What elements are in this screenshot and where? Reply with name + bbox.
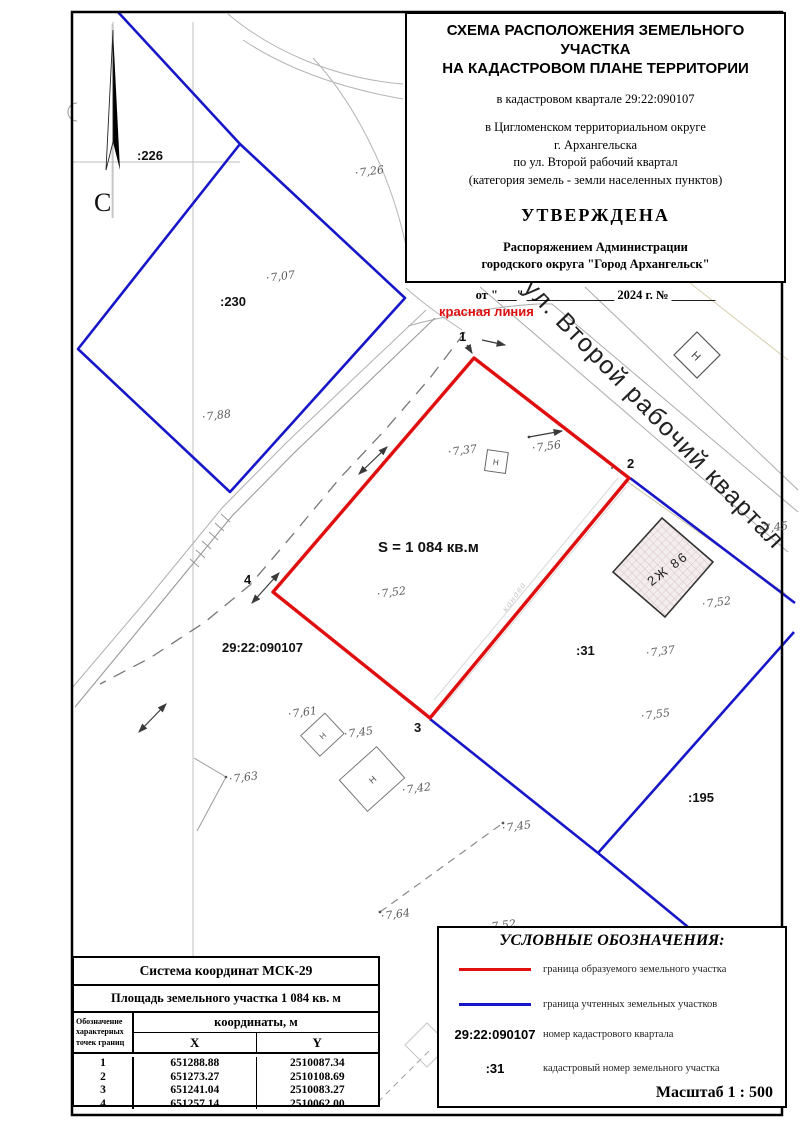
legend-blue-line-sample <box>459 1003 531 1006</box>
contour-lines <box>68 14 462 330</box>
scheme-title-line1: СХЕМА РАСПОЛОЖЕНИЯ ЗЕМЕЛЬНОГО УЧАСТКА <box>413 22 778 60</box>
address-line2: г. Архангельска <box>413 137 778 155</box>
points-header-line2: характерных <box>76 1027 132 1037</box>
table-row-num: 4 <box>74 1098 132 1112</box>
x-column-header: X <box>134 1033 257 1052</box>
parcel-area-label: S = 1 084 кв.м <box>378 539 479 556</box>
parcel-area-header: Площадь земельного участка 1 084 кв. м <box>74 986 378 1013</box>
y-coordinate-column: 2510087.34 2510108.69 2510083.27 2510062… <box>257 1057 379 1109</box>
tick-at-point1 <box>467 345 472 353</box>
parcel-230-boundary <box>78 144 405 492</box>
approval-date-line: от "___" ______________ 2024 г. № ______… <box>413 288 778 303</box>
x-coordinate-column: 651288.88 651273.27 651241.04 651257.14 <box>134 1057 257 1109</box>
parcel-label-230: :230 <box>220 294 246 309</box>
scheme-title-line2: НА КАДАСТРОВОМ ПЛАНЕ ТЕРРИТОРИИ <box>413 60 778 79</box>
point-label-1: 1 <box>459 329 466 344</box>
legend-item-label: граница образуемого земельного участка <box>543 964 726 975</box>
approved-heading: УТВЕРЖДЕНА <box>413 205 778 226</box>
parcel-31-195-boundary <box>598 632 794 853</box>
parcel-label-226: :226 <box>137 148 163 163</box>
road-centerline-dashed <box>100 332 465 684</box>
points-header-line1: Обозначение <box>76 1017 132 1027</box>
table-cell-y: 2510083.27 <box>257 1084 379 1098</box>
table-cell-x: 651257.14 <box>134 1098 256 1112</box>
arrow-near-756 <box>529 431 562 437</box>
north-letter: С <box>94 188 111 218</box>
table-cell-y: 2510108.69 <box>257 1071 379 1085</box>
arrow-near-point1 <box>482 340 505 345</box>
red-line-label: красная линия <box>439 304 534 319</box>
cadastral-scheme-page: Н Н Н Н 2Ж 86 <box>0 0 800 1131</box>
legend-title: УСЛОВНЫЕ ОБОЗНАЧЕНИЯ: <box>447 932 777 950</box>
point-number-column: 1 2 3 4 <box>74 1057 134 1109</box>
approved-by-line2: городского округа "Город Архангельск" <box>413 256 778 273</box>
table-cell-x: 651288.88 <box>134 1057 256 1071</box>
fence-outline <box>194 758 227 831</box>
coord-system-header: Система координат МСК-29 <box>74 958 378 986</box>
approved-by-line1: Распоряжением Администрации <box>413 239 778 256</box>
legend-parcel-number: :31 <box>486 1061 505 1076</box>
points-header-line3: точек границ <box>76 1038 132 1048</box>
table-cell-x: 651241.04 <box>134 1084 256 1098</box>
legend-red-line-sample <box>459 968 531 971</box>
table-row-num: 2 <box>74 1071 132 1085</box>
parcel-label-195: :195 <box>688 790 714 805</box>
double-arrow-road <box>359 447 387 474</box>
cadastral-quarter-label: 29:22:090107 <box>222 640 303 655</box>
table-cell-y: 2510087.34 <box>257 1057 379 1071</box>
coordinates-table: Система координат МСК-29 Площадь земельн… <box>72 956 380 1107</box>
parcel-label-31: :31 <box>576 643 595 658</box>
legend-item-label: кадастровый номер земельного участка <box>543 1063 720 1074</box>
ditch-lines <box>434 478 626 708</box>
table-cell-x: 651273.27 <box>134 1071 256 1085</box>
coordinates-header: координаты, м <box>134 1013 378 1033</box>
parcel-226-boundary <box>118 12 240 144</box>
table-cell-y: 2510062.00 <box>257 1098 379 1112</box>
table-row-num: 1 <box>74 1057 132 1071</box>
address-line4: (категория земель - земли населенных пун… <box>413 172 778 190</box>
address-line3: по ул. Второй рабочий квартал <box>413 154 778 172</box>
double-arrow-southwest <box>139 704 166 732</box>
parcel-195-west-boundary <box>598 853 688 927</box>
y-column-header: Y <box>257 1033 379 1052</box>
point-label-3: 3 <box>414 720 421 735</box>
legend-item-label: номер кадастрового квартала <box>543 1029 673 1040</box>
title-block: СХЕМА РАСПОЛОЖЕНИЯ ЗЕМЕЛЬНОГО УЧАСТКА НА… <box>405 12 786 283</box>
direction-arrows <box>139 340 621 732</box>
scale-label: Масштаб 1 : 500 <box>447 1084 777 1102</box>
table-row-num: 3 <box>74 1084 132 1098</box>
legend-box: УСЛОВНЫЕ ОБОЗНАЧЕНИЯ: граница образуемог… <box>437 926 787 1108</box>
formed-parcel-boundary <box>273 358 629 718</box>
legend-quarter-number: 29:22:090107 <box>455 1027 536 1042</box>
legend-item-label: граница учтенных земельных участков <box>543 999 717 1010</box>
point-label-2: 2 <box>627 456 634 471</box>
point-label-4: 4 <box>244 572 251 587</box>
address-line1: в Цигломенском территориальном округе <box>413 119 778 137</box>
cadastral-quarter-line: в кадастровом квартале 29:22:090107 <box>413 92 778 107</box>
points-column-header: Обозначение характерных точек границ <box>74 1013 134 1052</box>
